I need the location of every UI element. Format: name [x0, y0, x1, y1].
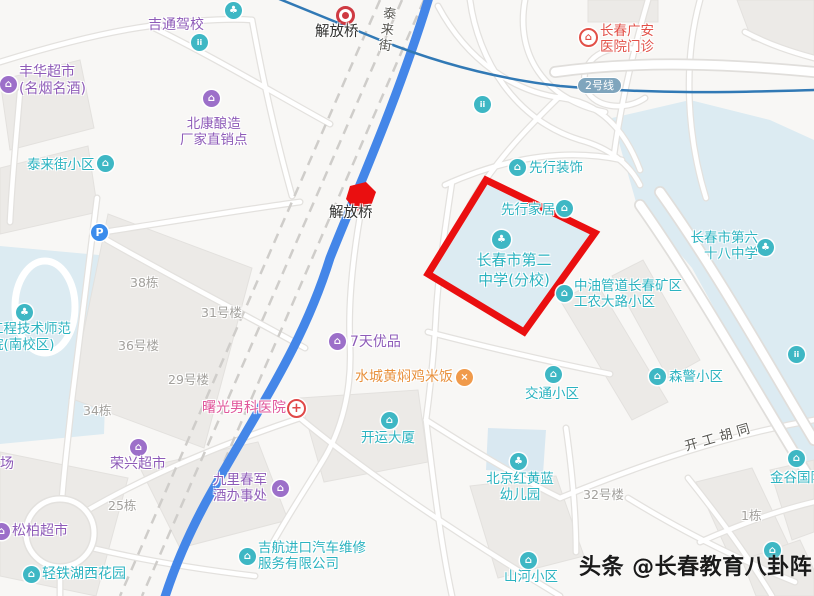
poi-line: 工农大路小区	[574, 294, 682, 310]
restaurant-icon[interactable]: ×	[456, 369, 473, 386]
community-icon[interactable]: ⌂	[788, 450, 805, 467]
poi-label-qingtie[interactable]: 轻铁湖西花园	[42, 566, 126, 583]
supermarket-icon[interactable]: ⌂	[0, 76, 17, 93]
poi-line: 中油管道长春矿区	[574, 278, 682, 294]
kindergarten-icon[interactable]: ♣	[510, 453, 527, 470]
poi-line: 北康酿造	[180, 116, 248, 132]
poi-label-honghuanglan[interactable]: 北京红黄蓝 幼儿园	[484, 471, 556, 504]
community-icon[interactable]: ⌂	[545, 366, 562, 383]
poi-line: 中学(分校)	[459, 270, 569, 290]
people-icon[interactable]: ii	[788, 346, 805, 363]
watermark-text: 头条 @长春教育八卦阵	[579, 549, 812, 581]
poi-label-rongxing[interactable]: 荣兴超市	[110, 456, 166, 473]
poi-label-senjing[interactable]: 森警小区	[669, 369, 723, 385]
people-icon[interactable]: ii	[191, 34, 208, 51]
community-icon[interactable]: ⌂	[649, 368, 666, 385]
building-label: 34栋	[83, 403, 111, 418]
metro-line2-badge[interactable]: 2号线	[577, 77, 622, 94]
poi-label-college[interactable]: 工程技术师范 院(南校区)	[0, 321, 71, 354]
community-icon[interactable]: ⌂	[520, 552, 537, 569]
poi-line: 医院门诊	[600, 39, 654, 55]
building-label: 38栋	[130, 275, 158, 290]
bridge-label-jiefangqiao[interactable]: 解放桥	[329, 205, 373, 223]
metro-station-dot	[342, 12, 349, 19]
poi-label-shanhe[interactable]: 山河小区	[504, 569, 558, 585]
driving-school-icon[interactable]: ♣	[225, 2, 242, 19]
building-label: 25栋	[108, 498, 136, 513]
building-label: 29号楼	[168, 372, 209, 387]
car-service-icon[interactable]: ⌂	[239, 548, 256, 565]
poi-line: 十八中学	[686, 246, 758, 262]
poi-label-kaiyun[interactable]: 开运大厦	[361, 430, 415, 446]
poi-line: 长春市第六	[686, 230, 758, 246]
liquor-office-icon[interactable]: ⌂	[272, 480, 289, 497]
poi-label-beikang[interactable]: 北康酿造 厂家直销点	[180, 116, 248, 149]
home-furnishing-icon[interactable]: ⌂	[556, 200, 573, 217]
poi-line: (名烟名酒)	[19, 81, 86, 98]
college-icon[interactable]: ♣	[16, 304, 33, 321]
poi-label-school68[interactable]: 长春市第六 十八中学	[686, 230, 758, 263]
building-label: 1栋	[741, 508, 761, 523]
poi-line: 幼儿园	[484, 487, 556, 503]
poi-line: 丰华超市	[19, 64, 86, 81]
poi-line: 吉航进口汽车维修	[258, 540, 366, 556]
poi-label-shuicheng[interactable]: 水城黄焖鸡米饭	[355, 369, 453, 386]
clinic-cross-icon[interactable]: +	[287, 399, 306, 418]
poi-line: 厂家直销点	[180, 132, 248, 148]
hospital-icon[interactable]: ⌂	[579, 28, 598, 47]
poi-line: 院(南校区)	[0, 337, 71, 353]
parking-icon[interactable]: P	[91, 224, 108, 241]
building-label: 31号楼	[201, 305, 242, 320]
metro-station-icon[interactable]	[336, 6, 355, 25]
poi-line: 长春广安	[600, 23, 654, 39]
building-label: 32号楼	[583, 487, 624, 502]
building-label: 36号楼	[118, 338, 159, 353]
hotel-icon[interactable]: ⌂	[329, 333, 346, 350]
poi-line: 酒办事处	[213, 488, 267, 504]
poi-label-guangan[interactable]: 长春广安 医院门诊	[600, 23, 654, 56]
map-canvas[interactable]: ♣ ⌂ ⌂ ⌂ ⌂ ii ii P ⌂ ⌂ ♣ ⌂ ♣ ii ⌂ ⌂ ♣ ⌂ ×…	[0, 0, 814, 596]
metro-station-label[interactable]: 解放桥	[315, 24, 359, 42]
people-icon[interactable]: ii	[474, 96, 491, 113]
poi-label-jiuli[interactable]: 九里春军 酒办事处	[213, 472, 267, 505]
poi-label-xianxing-jiaju[interactable]: 先行家居	[501, 202, 555, 218]
poi-label-songbai[interactable]: 松柏超市	[12, 523, 68, 540]
poi-label-jiaotong[interactable]: 交通小区	[525, 386, 579, 402]
supermarket-icon[interactable]: ⌂	[130, 439, 147, 456]
poi-line: 北京红黄蓝	[484, 471, 556, 487]
poi-label-fenghua[interactable]: 丰华超市 (名烟名酒)	[19, 64, 86, 98]
factory-store-icon[interactable]: ⌂	[203, 90, 220, 107]
poi-label-zhongyou[interactable]: 中油管道长春矿区 工农大路小区	[574, 278, 682, 311]
community-icon[interactable]: ⌂	[97, 155, 114, 172]
highlight-school-label[interactable]: 长春市第二 中学(分校)	[459, 250, 569, 291]
poi-label-shuguang[interactable]: 曙光男科医院	[202, 400, 286, 417]
poi-line: 工程技术师范	[0, 321, 71, 337]
poi-label-jihang[interactable]: 吉航进口汽车维修 服务有限公司	[258, 540, 366, 573]
poi-label-jingu[interactable]: 金谷国际	[770, 470, 814, 486]
school-icon[interactable]: ♣	[492, 230, 511, 249]
office-building-icon[interactable]: ⌂	[381, 412, 398, 429]
poi-label-tailai-xiaoqu[interactable]: 泰来街小区	[27, 157, 95, 173]
school-icon[interactable]: ♣	[757, 239, 774, 256]
community-icon[interactable]: ⌂	[23, 566, 40, 583]
poi-label-shichang[interactable]: 市场	[0, 456, 14, 473]
poi-line: 服务有限公司	[258, 556, 366, 572]
poi-label-xianxing-zhuangshi[interactable]: 先行装饰	[529, 160, 583, 176]
poi-line: 九里春军	[213, 472, 267, 488]
poi-line: 长春市第二	[459, 250, 569, 270]
poi-label-jitong[interactable]: 吉通驾校	[148, 17, 204, 34]
decoration-shop-icon[interactable]: ⌂	[509, 159, 526, 176]
poi-label-qitian[interactable]: 7天优品	[350, 334, 401, 351]
